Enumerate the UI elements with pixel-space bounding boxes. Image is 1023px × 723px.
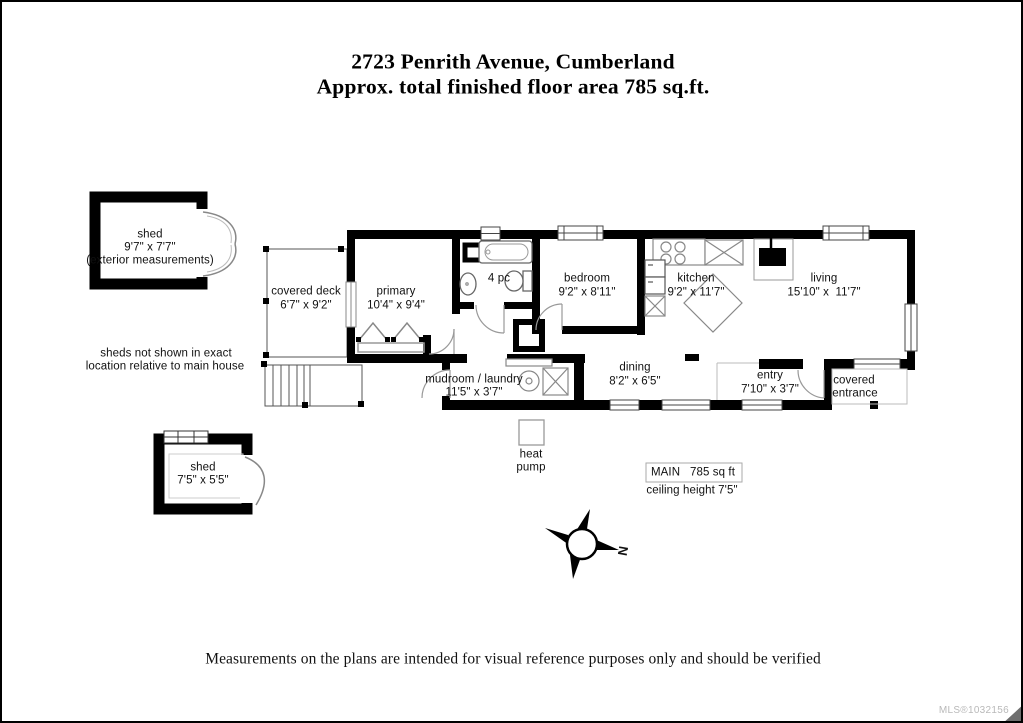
window <box>481 227 500 240</box>
window <box>610 400 639 410</box>
sink <box>460 273 476 295</box>
bath-label: 4 pc <box>488 273 510 285</box>
shed1-door-gap <box>195 209 209 277</box>
entry-right-wall <box>824 369 832 400</box>
living-label: living <box>811 273 838 285</box>
mudroom-shelf <box>506 359 552 366</box>
stove-body <box>759 248 786 266</box>
bath-south-wall-right <box>504 302 540 309</box>
kitchen-west-wall <box>637 239 645 335</box>
dining-label: dining <box>619 362 650 374</box>
bedroom-label: bedroom <box>564 273 610 285</box>
bathroom-fixtures <box>460 241 532 295</box>
stair-post <box>302 402 308 408</box>
dryer-x <box>543 368 568 395</box>
shed2-label: shed <box>190 462 215 474</box>
wood-stove <box>754 236 793 280</box>
entry-label: entry <box>757 370 783 382</box>
page-title-line1: 2723 Penrith Avenue, Cumberland <box>351 51 675 73</box>
deck-post <box>263 352 269 358</box>
compass-rose <box>545 509 619 579</box>
mudroom-dims: 11'5" x 3'7" <box>445 387 502 399</box>
page-title-line2: Approx. total finished floor area 785 sq… <box>317 76 710 98</box>
closet-shelf <box>358 343 424 352</box>
fridge <box>645 260 665 294</box>
bedroom-south-wall <box>562 326 645 334</box>
covered-entrance-label-line1: covered <box>833 375 875 387</box>
living-bottom-wall-a <box>759 359 803 369</box>
heat-pump-label-line2: pump <box>516 462 545 474</box>
shed2-door-gap <box>240 455 254 503</box>
deck-post <box>338 246 344 252</box>
bathtub <box>479 241 532 263</box>
kitchen-dining-stub <box>685 354 699 361</box>
kitchen-dims: 9'2" x 11'7" <box>667 287 724 299</box>
shed1-note: (exterior measurements) <box>86 255 214 267</box>
window <box>854 359 900 369</box>
covered-entrance-label-line2: entrance <box>832 388 878 400</box>
shed2-window <box>164 431 208 443</box>
covered-deck-dims: 6'7" x 9'2" <box>280 300 331 312</box>
porch-post <box>870 401 878 409</box>
entry-exterior-door <box>798 370 824 398</box>
mls-number: MLS®1032156 <box>939 705 1009 716</box>
bath-door <box>476 305 504 333</box>
shed1-dims: 9'7" x 7'7" <box>124 242 175 254</box>
covered-deck-label: covered deck <box>271 286 341 298</box>
main-area-text: MAIN 785 sq ft <box>651 467 735 479</box>
mudroom-left-wall-top <box>442 354 450 370</box>
window <box>558 226 603 240</box>
shed2-dims: 7'5" x 5'5" <box>177 475 228 487</box>
bifold-door <box>359 323 387 340</box>
entry-dims: 7'10" x 3'7" <box>741 384 799 396</box>
sheds-note-line1: sheds not shown in exact <box>100 348 232 360</box>
kitchen-label: kitchen <box>677 273 714 285</box>
window <box>905 304 917 351</box>
window <box>742 400 782 410</box>
disclaimer-text: Measurements on the plans are intended f… <box>205 651 821 667</box>
shed1-label: shed <box>137 229 162 241</box>
bath-south-wall-left <box>452 302 474 309</box>
stair-landing <box>310 365 362 406</box>
primary-closet <box>356 323 424 352</box>
bifold-door <box>393 323 421 340</box>
stairs <box>261 361 364 408</box>
living-dims: 15'10" x 11'7" <box>787 287 860 299</box>
primary-dims: 10'4" x 9'4" <box>367 300 425 312</box>
window <box>823 226 869 240</box>
heat-pump-unit <box>519 420 544 445</box>
ceiling-height-text: ceiling height 7'5" <box>646 485 737 497</box>
compass-north-label: N <box>616 545 630 557</box>
primary-door <box>429 329 454 354</box>
cabinet-x <box>645 296 665 316</box>
stair-post <box>261 361 267 367</box>
mudroom-right-wall <box>574 357 584 410</box>
bedroom-dims: 9'2" x 8'11" <box>558 287 615 299</box>
floor-plan-page: 2723 Penrith Avenue, Cumberland Approx. … <box>0 0 1023 723</box>
primary-label: primary <box>376 286 415 298</box>
deck-post <box>263 298 269 304</box>
dining-dims: 8'2" x 6'5" <box>609 376 660 388</box>
heat-pump-label-line1: heat <box>520 449 543 461</box>
patio-window <box>346 282 356 327</box>
stair-post <box>358 401 364 407</box>
window <box>662 400 710 410</box>
mudroom-bottom-wall <box>442 400 588 410</box>
sheds-note-line2: location relative to main house <box>86 361 244 373</box>
counter-x <box>705 240 743 265</box>
deck-post <box>263 246 269 252</box>
mudroom-label: mudroom / laundry <box>425 374 523 386</box>
